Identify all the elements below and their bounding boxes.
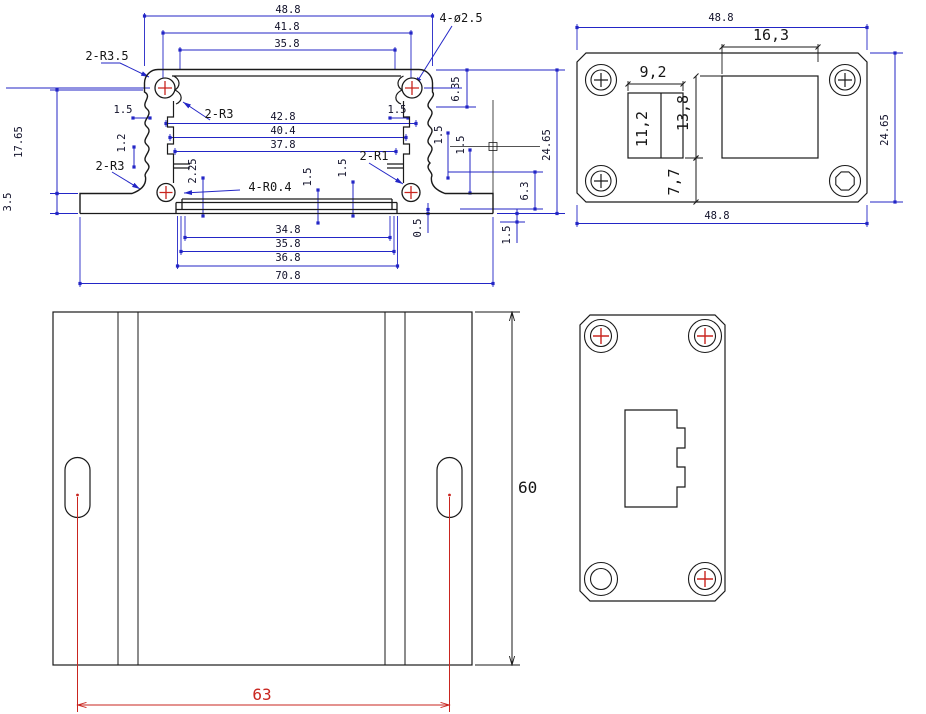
dim-label: 63 bbox=[252, 685, 271, 704]
dimension-labels: 48.816,39,211,213,87,748.824.65 bbox=[633, 12, 891, 222]
dim-label: 1.5 bbox=[388, 104, 407, 116]
dim-label: 1.5 bbox=[433, 126, 445, 145]
dim-label: 37.8 bbox=[270, 139, 295, 151]
dim-label: 2.25 bbox=[187, 158, 199, 183]
view-cross-section: 48.841.835.82-R3.54-ø2.52-R31.51.242.840… bbox=[2, 4, 565, 287]
drawing-canvas: 48.841.835.82-R3.54-ø2.52-R31.51.242.840… bbox=[0, 0, 926, 714]
dim-label: 60 bbox=[518, 478, 537, 497]
dim-label: 6.35 bbox=[450, 76, 462, 101]
dim-63-red bbox=[76, 494, 451, 712]
dimension-lines bbox=[57, 16, 557, 284]
dim-label: 1.5 bbox=[114, 104, 133, 116]
dim-label: 2-R3.5 bbox=[85, 49, 128, 63]
dim-label: 70.8 bbox=[275, 270, 300, 282]
hole-bottom-right bbox=[830, 166, 861, 197]
dim-label: 1.5 bbox=[302, 168, 314, 187]
dim-label: 17.65 bbox=[13, 126, 25, 158]
extension-lines-black bbox=[628, 44, 818, 158]
dim-label: 2-R3 bbox=[96, 159, 125, 173]
flange-lines bbox=[118, 312, 405, 665]
hole-bottom-left bbox=[585, 563, 618, 596]
engineering-drawing: 48.841.835.82-R3.54-ø2.52-R31.51.242.840… bbox=[0, 0, 926, 714]
dim-terminators bbox=[426, 208, 518, 224]
dim-label: 3.5 bbox=[2, 193, 14, 212]
dim-label: 6.3 bbox=[519, 182, 531, 201]
dim-label: 36.8 bbox=[275, 252, 300, 264]
dim-label: 4-ø2.5 bbox=[439, 11, 482, 25]
dim-label: 1.2 bbox=[116, 134, 128, 153]
dim-label: 42.8 bbox=[270, 111, 295, 123]
connector-cutout bbox=[625, 410, 685, 507]
cutouts bbox=[628, 76, 818, 158]
dim-label: 16,3 bbox=[753, 26, 789, 44]
screw-bottom-left bbox=[586, 166, 617, 197]
view-plan: 6063 bbox=[53, 312, 537, 712]
dim-label: 11,2 bbox=[633, 111, 651, 147]
dim-label: 7,7 bbox=[665, 168, 683, 195]
dim-label: 34.8 bbox=[275, 224, 300, 236]
base-plate bbox=[80, 199, 493, 214]
dim-label: 9,2 bbox=[639, 63, 666, 81]
screw-centre-crosses bbox=[593, 328, 713, 587]
dim-label: 48.8 bbox=[704, 210, 729, 222]
corner-screws bbox=[585, 320, 722, 596]
dimension-labels: 6063 bbox=[252, 478, 537, 704]
connector-cutout-large bbox=[722, 76, 818, 158]
plan-outline bbox=[53, 312, 472, 665]
dim-label: 4-R0.4 bbox=[248, 180, 291, 194]
dim-label: 1.5 bbox=[455, 136, 467, 155]
dim-label: 2-R3 bbox=[205, 107, 234, 121]
screw-top-left bbox=[586, 65, 617, 96]
dim-label: 48.8 bbox=[708, 12, 733, 24]
dim-label: 35.8 bbox=[274, 38, 299, 50]
dimension-labels: 48.841.835.82-R3.54-ø2.52-R31.51.242.840… bbox=[2, 4, 553, 282]
end-panel-outline bbox=[580, 315, 725, 601]
dim-label: 40.4 bbox=[270, 125, 295, 137]
dim-label: 41.8 bbox=[274, 21, 299, 33]
view-end-panel bbox=[580, 315, 725, 601]
dim-label: 24.65 bbox=[879, 114, 891, 146]
dim-label: 1.5 bbox=[337, 159, 349, 178]
dim-label: 24.65 bbox=[541, 129, 553, 161]
dim-label: 1.5 bbox=[501, 226, 513, 245]
dim-label: 2-R1 bbox=[360, 149, 389, 163]
corner-screws bbox=[586, 65, 861, 197]
view-end-cap-top: 48.816,39,211,213,87,748.824.65 bbox=[577, 12, 903, 227]
dimension-lines bbox=[577, 28, 895, 224]
dim-label: 48.8 bbox=[275, 4, 300, 16]
screw-top-right bbox=[830, 65, 861, 96]
dim-label: 0.5 bbox=[412, 219, 424, 238]
dim-label: 35.8 bbox=[275, 238, 300, 250]
mounting-slots bbox=[65, 457, 462, 517]
extension-lines bbox=[577, 24, 903, 227]
dim-label: 13,8 bbox=[674, 95, 692, 131]
extension-lines-black bbox=[475, 312, 520, 665]
